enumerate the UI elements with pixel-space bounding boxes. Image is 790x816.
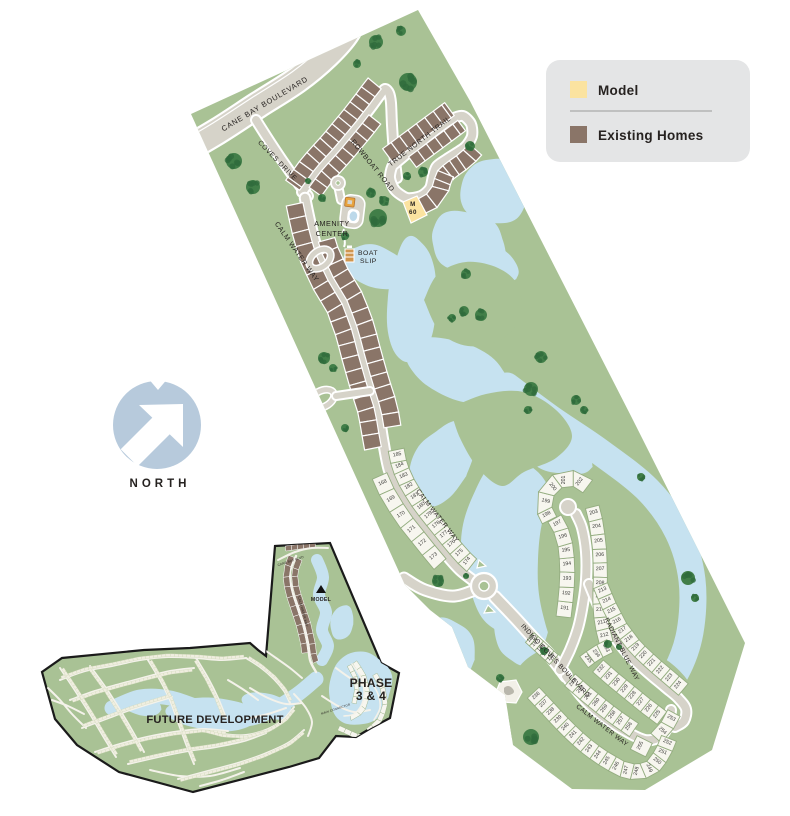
svg-text:CENTER: CENTER [316, 229, 349, 238]
svg-text:194: 194 [562, 561, 571, 568]
svg-text:M: M [410, 201, 416, 208]
svg-text:AMENITY: AMENITY [314, 219, 349, 228]
svg-text:3 & 4: 3 & 4 [356, 689, 386, 703]
svg-text:201: 201 [561, 475, 567, 484]
svg-text:MODEL: MODEL [311, 597, 332, 603]
svg-text:FUTURE DEVELOPMENT: FUTURE DEVELOPMENT [146, 714, 283, 726]
svg-text:207: 207 [596, 566, 605, 572]
svg-text:192: 192 [561, 590, 570, 597]
svg-text:193: 193 [563, 576, 572, 582]
svg-text:NORTH: NORTH [130, 478, 191, 490]
svg-text:Existing Homes: Existing Homes [598, 128, 703, 143]
svg-text:205: 205 [594, 537, 603, 544]
svg-text:206: 206 [595, 552, 604, 558]
svg-text:204: 204 [592, 523, 601, 530]
svg-text:SLIP: SLIP [360, 258, 377, 265]
svg-text:PHASE: PHASE [350, 676, 393, 690]
svg-text:195: 195 [561, 547, 570, 554]
svg-text:BOAT: BOAT [358, 250, 378, 257]
svg-text:60: 60 [409, 209, 417, 216]
svg-text:191: 191 [560, 605, 569, 612]
svg-text:Model: Model [598, 83, 639, 98]
